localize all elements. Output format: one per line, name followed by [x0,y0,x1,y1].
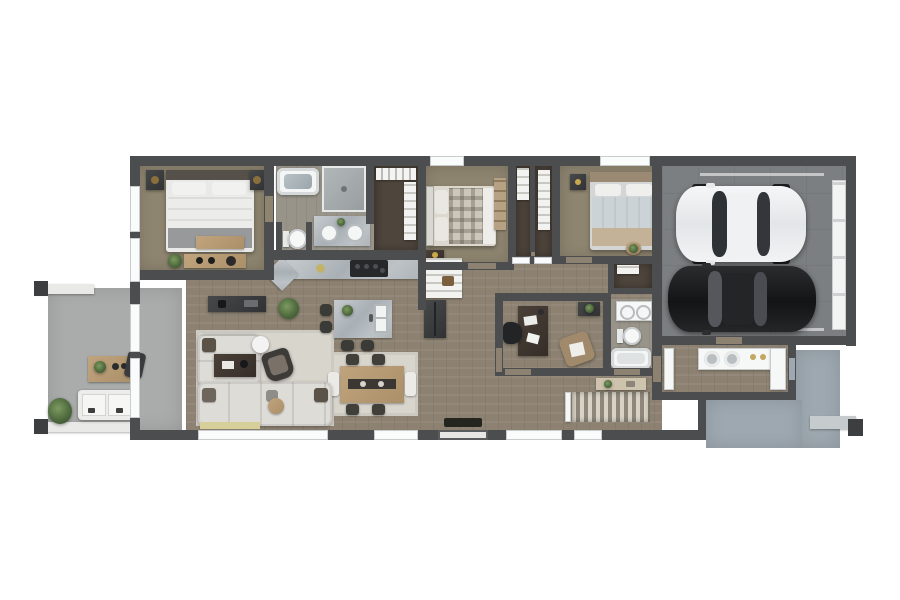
bar-stool-2 [320,321,332,333]
bedroom2-pillow-2 [435,217,448,241]
bar-stool-1 [320,304,332,316]
hall-office-door-opening [505,369,531,375]
hall-window-bottom-1 [506,430,562,440]
living-window-bottom [198,430,328,440]
hall-console-table [596,378,646,390]
living-window-left-1 [130,304,140,352]
closet-wall-left [508,156,516,256]
mudroom-cabinet-right [770,348,786,390]
rear-patio-floor-right [796,350,840,448]
dining-chair-end-right [405,372,416,396]
coffee-table [214,354,256,377]
bedroom3-nightstand [570,174,586,190]
entry-corner-wall [698,398,706,440]
entry-doormat [444,418,482,427]
refrigerator [424,300,446,338]
garage-door-track-top [700,173,824,176]
pergola-post-bottom [34,419,48,434]
bedroom2-pillow-1 [435,190,448,214]
office-bath-divider [603,293,611,375]
white-sedan [676,186,806,262]
master-sink-left [320,224,338,242]
bath2-sink-left [620,305,635,320]
master-bathtub [277,168,319,195]
dining-runner [348,379,396,389]
patio-loveseat [78,390,136,420]
linen-closet-shelf [617,265,639,274]
master-bath-door-opening [265,196,273,222]
garage-mudroom-door-opening [716,337,742,344]
front-door [438,430,488,440]
bath-closet-divider [366,166,374,224]
outer-wall-top [130,156,856,166]
bedroom3-pillow-left [595,184,621,196]
bedroom3-pillow-right [626,184,652,196]
patio-plant [48,398,72,424]
black-sedan-roof [722,273,754,325]
bedroom2-window-top [430,156,464,166]
closet-divider [530,166,535,252]
master-pillow-left [172,182,206,195]
bath2-bathtub [611,348,651,369]
mudroom-wall-bottom [652,392,796,400]
master-bench [196,236,244,249]
floor-plan-rendering [0,0,900,600]
master-window-left-2 [130,238,140,282]
hall-closet-left-shelves [517,168,529,200]
island-sink [374,304,388,333]
mudroom-patio-door-opening [789,358,795,380]
bedroom3-plant-stand [626,242,641,255]
bedroom3-window-top [600,156,650,166]
sofa-pillow-3 [314,388,328,402]
island-faucet [369,314,373,322]
bar-stool-4 [361,340,374,351]
bedroom2-headboard [426,186,434,246]
black-sedan-rear-window [754,272,767,326]
kitchen-range [350,260,388,277]
hall-closet-right-shelves [538,170,550,230]
dining-chair-4 [372,404,385,415]
office-desk [518,306,548,356]
garage-wall-bottom [656,336,856,345]
slat-side-rail [565,392,571,422]
kitchen-counter-decor [316,264,325,273]
bedroom2-door-opening [468,263,496,269]
sectional-sofa-long [198,382,332,426]
bar-stool-3 [341,340,354,351]
bedroom3-headboard [590,172,658,182]
master-duvet [168,196,252,230]
master-nightstand-left [146,170,164,190]
kitchen-counter [286,258,420,279]
bathroom2-door-opening [614,369,640,375]
closet-sliding-door-left [512,257,530,264]
office-door-opening [496,348,502,372]
master-vanity-plant [337,218,345,226]
office-chair [503,322,522,344]
bedroom3-bed [590,172,658,250]
rear-patio-post [848,419,863,436]
white-sedan-roof [727,193,757,255]
washer [704,351,720,367]
dryer [724,351,740,367]
dining-chair-3 [346,404,359,415]
sofa-pillow-2 [202,388,216,402]
living-window-left-2 [130,358,140,418]
bedroom2-shelf-unit [494,178,506,230]
bath2-sink-right [636,305,651,320]
wc-wall-left [276,222,282,256]
hall-window-bottom-2 [574,430,602,440]
master-dresser [184,254,246,268]
mudroom-decor-1 [750,354,756,360]
closet-shelving [404,182,416,240]
closet-wall-right [552,156,560,256]
hall-mudroom-door-opening [653,356,661,382]
bath2-vanity [616,301,652,321]
mudroom-decor-2 [760,354,766,360]
kitchen-island [334,300,392,338]
pergola-post-top [34,281,48,296]
garage-door-panel [832,180,846,330]
closet-sliding-door-right [534,257,552,264]
bedroom3-door-opening [566,257,592,263]
white-sedan-windshield [712,191,727,257]
house-garage-wall [652,156,662,346]
linen-closet-wall-bottom [608,288,656,294]
office-dresser [578,302,600,316]
bath-closet-wall-bottom [274,250,426,260]
bedroom3-duvet [592,197,656,229]
bedroom3-foot-throw [592,228,656,246]
office-wall-top [495,293,611,301]
living-plant [278,298,299,319]
rear-patio-floor-bottom [706,400,802,448]
black-sedan-windshield [708,271,722,327]
master-window-left-1 [130,186,140,232]
pergola-beam-bottom [36,422,132,432]
island-plant [342,305,353,316]
master-pillow-right [212,182,246,195]
dining-chair-2 [372,354,385,365]
master-vanity [314,216,370,246]
dining-table [340,366,404,403]
living-doormat-runner [200,422,260,429]
bath2-toilet [617,326,641,346]
bedroom2-bed [426,186,496,246]
media-console [208,296,266,312]
mudroom-cabinet-left [664,348,674,390]
master-nightstand-right [250,170,264,190]
master-sink-right [346,224,364,242]
sofa-pillow-1 [202,338,216,352]
dining-chair-1 [346,354,359,365]
slatted-stair-feature [572,392,650,422]
master-wall-bottom [130,270,274,280]
dining-window-bottom [374,430,418,440]
floor-lamp [252,336,269,353]
bedroom2-wall-bottom [418,262,514,270]
bedroom2-wall-left [418,156,426,310]
master-toilet [283,228,307,250]
master-headboard [166,170,254,180]
black-sedan [668,266,816,332]
wc-wall-right [306,222,312,256]
master-shower [322,166,366,212]
side-table [268,398,284,414]
closet-hanging-clothes [376,168,416,180]
pantry-basket [442,276,454,286]
garage-wall-right [846,156,856,346]
master-plant [168,254,182,268]
white-sedan-rear-window [757,192,770,256]
bedroom2-plaid-duvet [449,188,483,244]
